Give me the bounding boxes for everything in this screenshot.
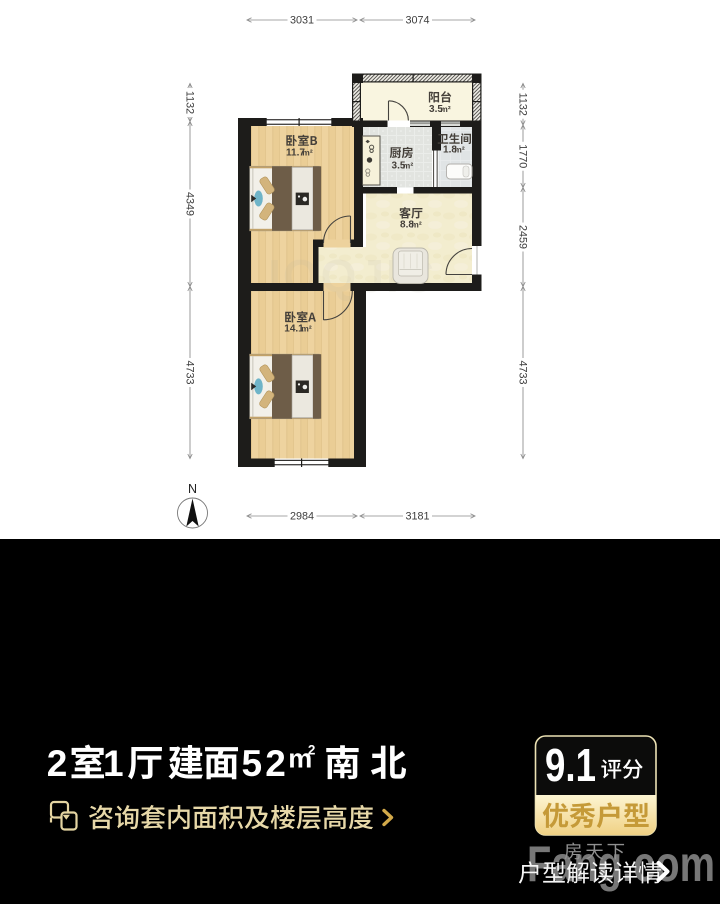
svg-text:2: 2: [308, 742, 316, 757]
svg-text:3181: 3181: [405, 511, 429, 523]
svg-text:9.1: 9.1: [545, 739, 596, 791]
svg-text:3031: 3031: [290, 15, 314, 27]
svg-text:m²: m²: [302, 148, 313, 158]
svg-text:1: 1: [103, 743, 124, 784]
svg-text:m²: m²: [411, 220, 422, 230]
svg-text:4733: 4733: [184, 360, 196, 384]
svg-text:5: 5: [242, 743, 263, 784]
svg-text:4349: 4349: [184, 192, 196, 216]
svg-text:2: 2: [265, 743, 286, 784]
svg-text:2984: 2984: [290, 511, 314, 523]
svg-text:1132: 1132: [517, 93, 529, 116]
svg-text:3074: 3074: [405, 15, 429, 27]
svg-text:m²: m²: [301, 324, 312, 334]
svg-text:4733: 4733: [517, 360, 529, 384]
svg-text:2459: 2459: [517, 225, 529, 249]
svg-text:2: 2: [47, 743, 68, 784]
svg-text:m²: m²: [440, 104, 451, 114]
svg-text:1132: 1132: [184, 91, 196, 114]
svg-text:m²: m²: [403, 161, 414, 171]
svg-text:N: N: [188, 482, 197, 496]
svg-text:1770: 1770: [517, 144, 529, 168]
svg-text:m²: m²: [454, 145, 465, 155]
